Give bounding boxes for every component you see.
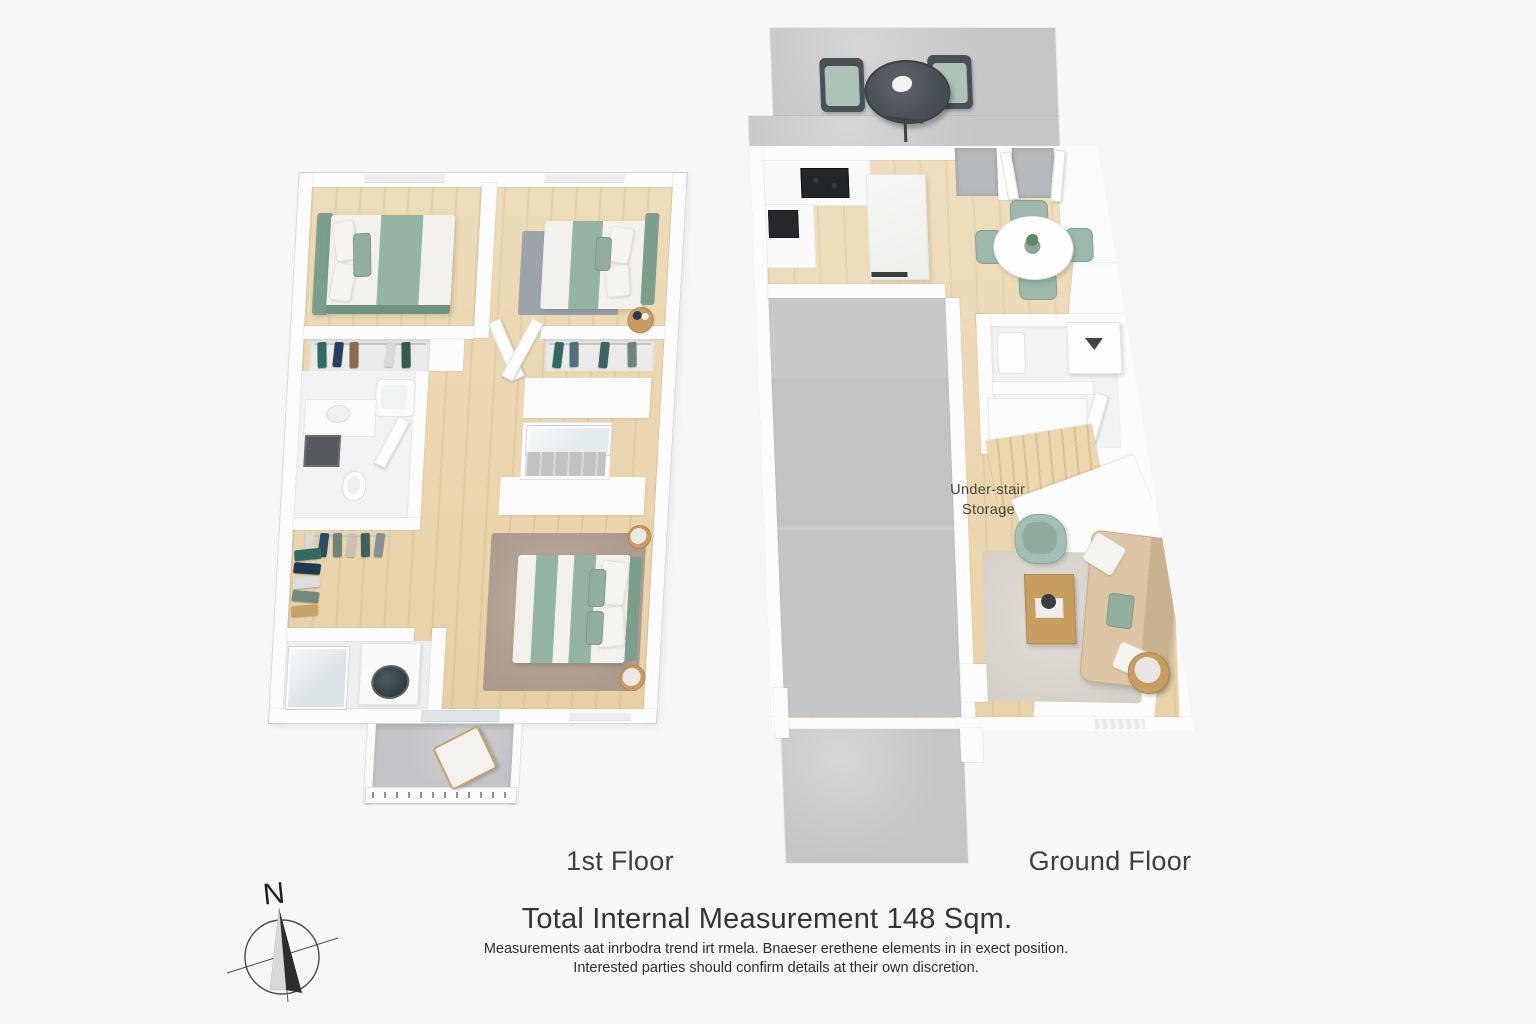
- appliance-logo-icon: [1085, 338, 1103, 350]
- hanging-garment: [627, 342, 636, 368]
- master-window: [569, 711, 632, 721]
- cooktop: [800, 168, 849, 198]
- living-room-window: [1095, 719, 1145, 729]
- disclaimer-line1: Measurements aat inrbodra trend irt rmel…: [396, 941, 1156, 957]
- armchair-cushion: [1022, 522, 1057, 554]
- hanging-garment: [570, 342, 579, 367]
- bathtub-basin: [381, 385, 408, 409]
- stairwell-void: [525, 452, 606, 476]
- shower-enclosure: [286, 647, 349, 709]
- first-floor-label: 1st Floor: [520, 846, 720, 877]
- ground-floor-plan: Under-stair Storage: [740, 28, 1227, 864]
- master-accent-pillow: [585, 611, 604, 645]
- hanging-garment: [401, 342, 410, 369]
- kitchen-partition-wall: [768, 284, 946, 298]
- garage-floor: [768, 298, 961, 717]
- folded-garment: [291, 590, 319, 603]
- compass-north-label: N: [261, 877, 286, 912]
- kitchen-island: [866, 174, 930, 280]
- bed1-accent-pillow: [353, 232, 372, 277]
- wc-divider-wall: [993, 382, 1093, 394]
- under-stair-line2: Storage: [962, 502, 1016, 518]
- compass-rose: N: [225, 872, 340, 1007]
- driveway-wall-stub-right-lower: [960, 728, 983, 762]
- oven: [768, 210, 799, 238]
- bed1-footboard: [326, 305, 451, 314]
- wardrobe-south-wall: [287, 628, 415, 641]
- floor-plan-image: Under-stair Storage 1st Floor Ground F: [0, 0, 1536, 1024]
- hanging-garment: [361, 533, 370, 558]
- south-wall: [956, 717, 1194, 731]
- ground-floor-slab: Under-stair Storage: [750, 146, 1194, 731]
- closet-end-cabinet: [429, 339, 465, 371]
- first-floor-plan: [219, 168, 700, 816]
- under-stair-line1: Under-stair: [950, 482, 1026, 498]
- bed2-accent-pillow: [594, 237, 612, 271]
- island-dark-trim: [871, 272, 907, 277]
- wardrobe-north-wall: [293, 518, 421, 530]
- under-stair-storage-label: Under-stair Storage: [942, 480, 1034, 520]
- folded-garment: [293, 562, 321, 575]
- first-floor-slab: [269, 173, 687, 723]
- balcony-door-glass: [421, 710, 500, 722]
- bedroom1-window: [364, 173, 445, 183]
- patio-chair-cushion: [824, 66, 860, 106]
- master-north-wall-block: [499, 477, 646, 515]
- wall-under-bedroom1: [303, 326, 474, 339]
- stairwell-glass-balustrade: [526, 426, 612, 455]
- wc-sink: [997, 332, 1027, 374]
- side-table-top: [1134, 657, 1161, 683]
- entry-mat: [1012, 148, 1056, 198]
- master-accent-pillow: [587, 569, 606, 607]
- entry-mat: [955, 148, 999, 196]
- vanity-dark-top: [303, 435, 341, 467]
- ground-floor-label: Ground Floor: [1010, 846, 1210, 877]
- folded-garment: [291, 604, 318, 617]
- driveway-wall-stub-left: [773, 688, 789, 738]
- folded-garment: [293, 576, 320, 589]
- bedroom2-window: [544, 173, 625, 183]
- disclaimer-line2: Interested parties should confirm detail…: [396, 960, 1156, 976]
- driveway-wall-stub-right: [960, 664, 987, 702]
- total-measurement-title: Total Internal Measurement 148 Sqm.: [467, 903, 1067, 936]
- hall-wall-block: [523, 378, 651, 418]
- hanging-garment: [317, 342, 326, 369]
- driveway: [781, 729, 968, 863]
- hanging-garment: [349, 342, 358, 368]
- sofa-pillow-sage: [1106, 592, 1135, 629]
- bed1-duvet-band: [376, 215, 423, 313]
- coffee-table-bowl: [1041, 594, 1057, 609]
- balcony-balusters: [372, 792, 510, 798]
- hanging-garment: [333, 533, 342, 557]
